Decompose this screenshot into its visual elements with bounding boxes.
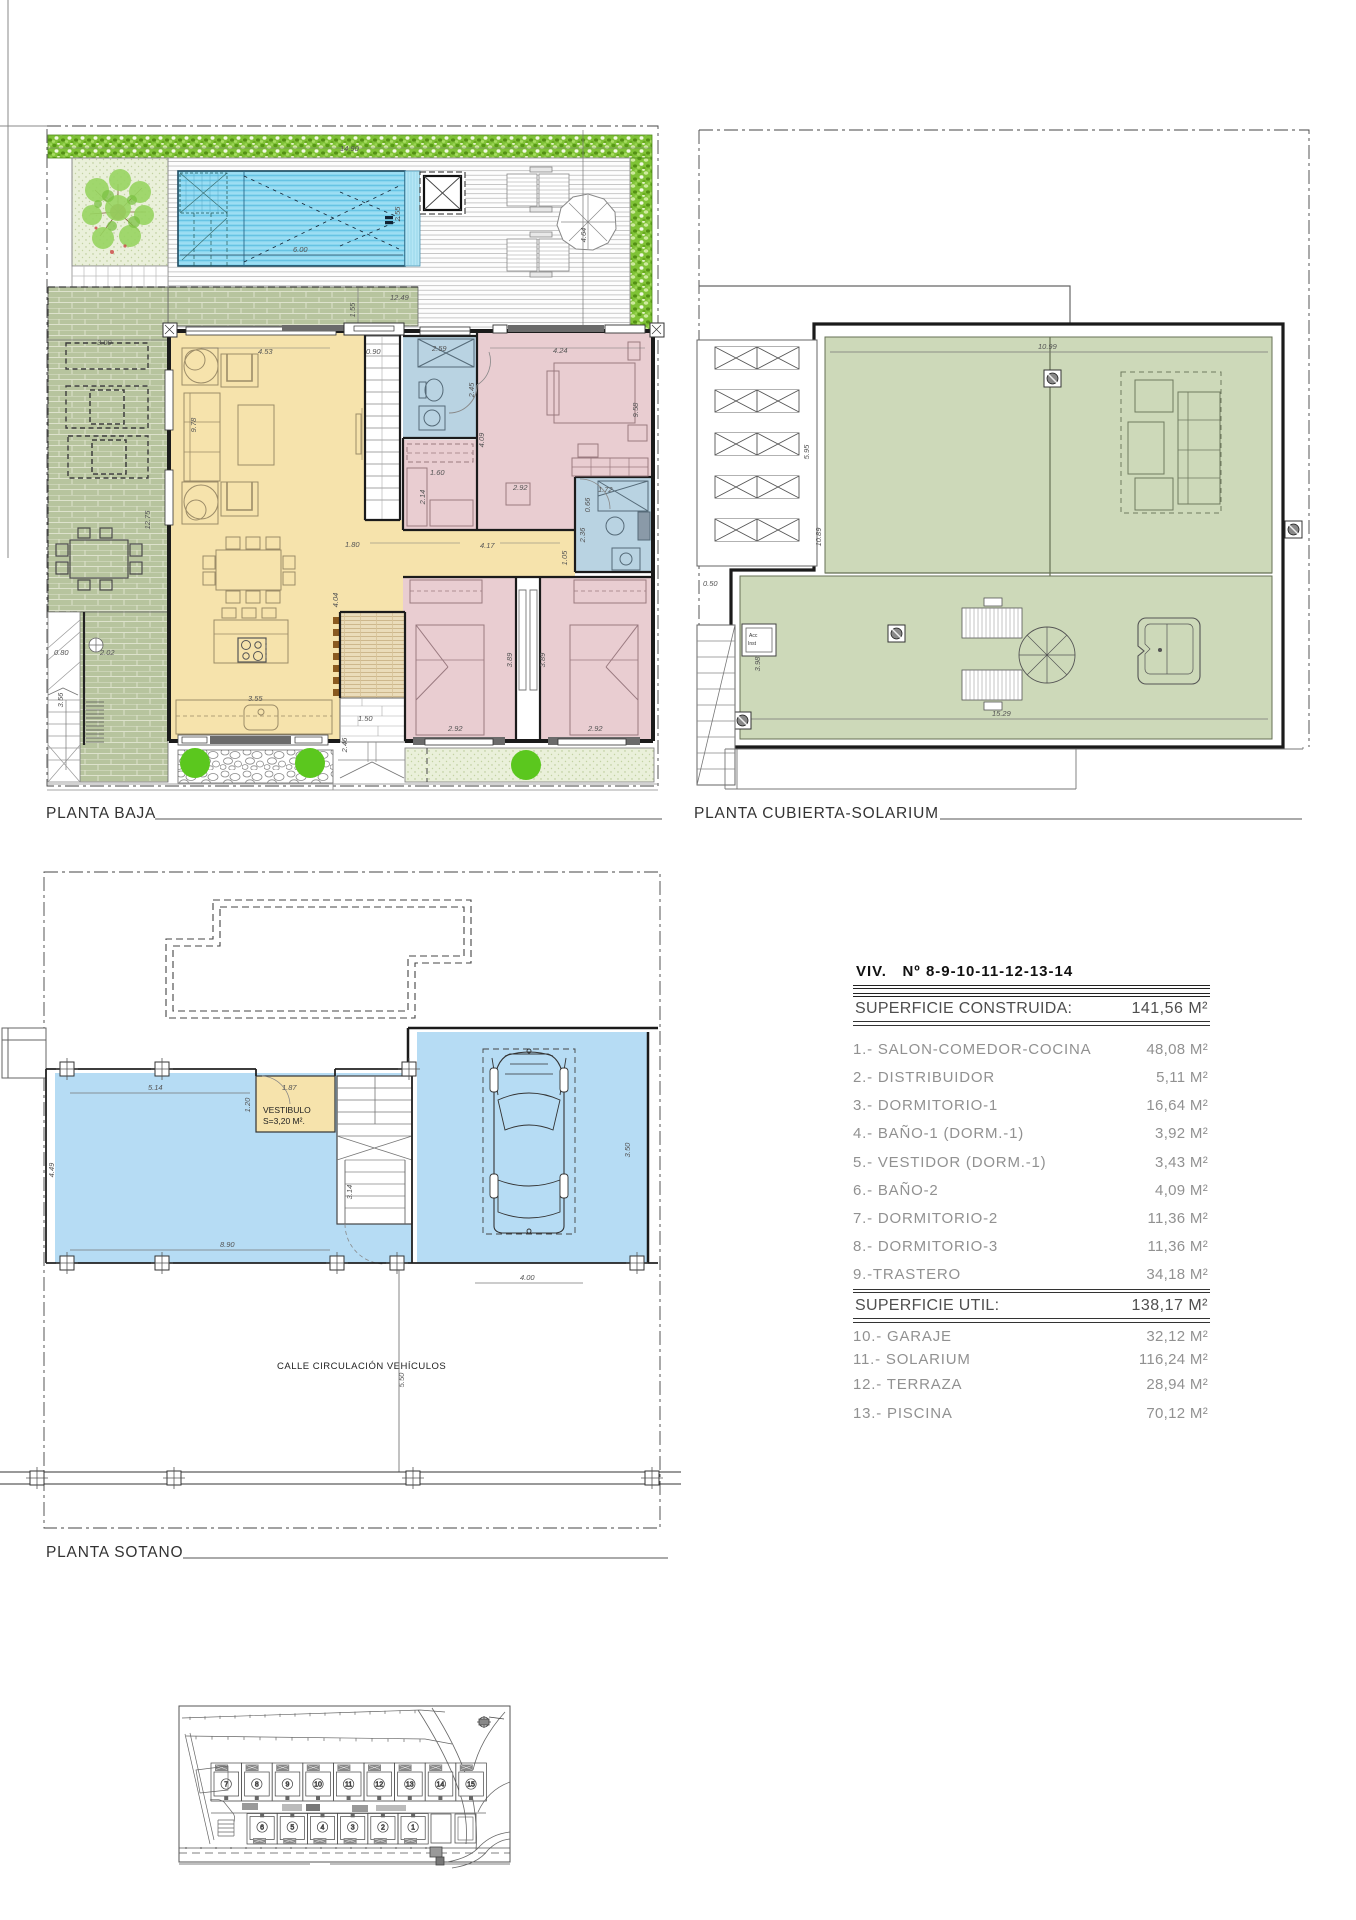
- svg-text:9.58: 9.58: [631, 402, 640, 417]
- svg-text:PLANTA BAJA: PLANTA BAJA: [46, 805, 156, 822]
- svg-text:4.24: 4.24: [553, 346, 568, 355]
- svg-text:9: 9: [285, 1782, 289, 1789]
- svg-text:Inst: Inst: [748, 641, 757, 647]
- svg-text:1.05: 1.05: [560, 550, 569, 565]
- svg-text:2.02: 2.02: [99, 648, 115, 657]
- svg-text:5.14: 5.14: [148, 1083, 163, 1092]
- svg-text:2.92: 2.92: [447, 724, 463, 733]
- svg-text:4: 4: [321, 1825, 325, 1832]
- svg-text:4.17: 4.17: [480, 541, 495, 550]
- svg-text:1.87: 1.87: [282, 1083, 297, 1092]
- svg-text:4.64: 4.64: [579, 228, 588, 243]
- svg-text:4.09: 4.09: [477, 432, 486, 447]
- svg-text:10.99: 10.99: [1038, 342, 1058, 351]
- svg-text:VESTIBULO: VESTIBULO: [263, 1105, 311, 1115]
- svg-text:13: 13: [406, 1782, 414, 1789]
- svg-text:4.04: 4.04: [331, 593, 340, 608]
- svg-text:8.90: 8.90: [220, 1240, 235, 1249]
- svg-text:7: 7: [224, 1782, 228, 1789]
- svg-text:1.60: 1.60: [430, 468, 445, 477]
- svg-text:9.78: 9.78: [189, 417, 198, 432]
- svg-text:3: 3: [351, 1825, 355, 1832]
- svg-text:3.55: 3.55: [248, 694, 263, 703]
- svg-text:Acc: Acc: [749, 633, 758, 639]
- svg-text:4.00: 4.00: [520, 1273, 535, 1282]
- svg-text:PLANTA CUBIERTA-SOLARIUM: PLANTA CUBIERTA-SOLARIUM: [694, 805, 939, 822]
- svg-text:PLANTA SOTANO: PLANTA SOTANO: [46, 1544, 183, 1561]
- svg-text:2.59: 2.59: [431, 344, 447, 353]
- svg-text:2.55: 2.55: [393, 206, 402, 222]
- svg-text:3.56: 3.56: [56, 692, 65, 707]
- svg-text:1.72: 1.72: [598, 485, 613, 494]
- svg-text:4.49: 4.49: [47, 1162, 56, 1177]
- svg-text:2.92: 2.92: [587, 724, 603, 733]
- svg-text:8: 8: [255, 1782, 259, 1789]
- svg-text:3.98: 3.98: [753, 656, 762, 671]
- svg-text:5.50: 5.50: [397, 1372, 406, 1387]
- svg-text:0.80: 0.80: [54, 648, 69, 657]
- svg-text:6.00: 6.00: [293, 245, 308, 254]
- svg-text:2.45: 2.45: [467, 382, 476, 398]
- svg-text:5.95: 5.95: [802, 444, 811, 459]
- svg-text:11: 11: [345, 1782, 352, 1789]
- svg-text:0.50: 0.50: [703, 579, 718, 588]
- svg-text:3.50: 3.50: [623, 1142, 632, 1157]
- svg-text:12: 12: [375, 1782, 383, 1789]
- svg-text:1.20: 1.20: [243, 1097, 252, 1112]
- svg-text:2.92: 2.92: [512, 483, 528, 492]
- svg-text:1.80: 1.80: [345, 540, 360, 549]
- svg-text:0.66: 0.66: [583, 497, 592, 512]
- svg-text:2.46: 2.46: [340, 737, 349, 753]
- svg-text:15: 15: [467, 1782, 475, 1789]
- svg-text:1.50: 1.50: [358, 714, 373, 723]
- svg-text:3.89: 3.89: [505, 652, 514, 667]
- svg-text:2.36: 2.36: [578, 527, 587, 543]
- svg-text:2: 2: [381, 1825, 385, 1832]
- svg-text:14: 14: [437, 1782, 445, 1789]
- svg-text:3.89: 3.89: [538, 652, 547, 667]
- svg-text:2.14: 2.14: [418, 490, 427, 506]
- svg-text:6: 6: [260, 1825, 264, 1832]
- svg-text:10: 10: [314, 1782, 322, 1789]
- svg-text:5: 5: [290, 1825, 294, 1832]
- svg-text:4.53: 4.53: [258, 347, 273, 356]
- svg-text:1: 1: [411, 1825, 415, 1832]
- svg-text:CALLE CIRCULACIÓN VEHÍCULOS: CALLE CIRCULACIÓN VEHÍCULOS: [277, 1361, 446, 1372]
- svg-text:12.75: 12.75: [143, 510, 152, 530]
- svg-text:S=3,20 M².: S=3,20 M².: [263, 1116, 305, 1126]
- svg-text:1.55: 1.55: [348, 302, 357, 317]
- svg-text:10.89: 10.89: [814, 527, 823, 547]
- svg-text:12.49: 12.49: [390, 293, 410, 302]
- svg-text:0.90: 0.90: [366, 347, 381, 356]
- svg-text:3.14: 3.14: [345, 1185, 354, 1200]
- svg-text:14.90: 14.90: [340, 144, 360, 153]
